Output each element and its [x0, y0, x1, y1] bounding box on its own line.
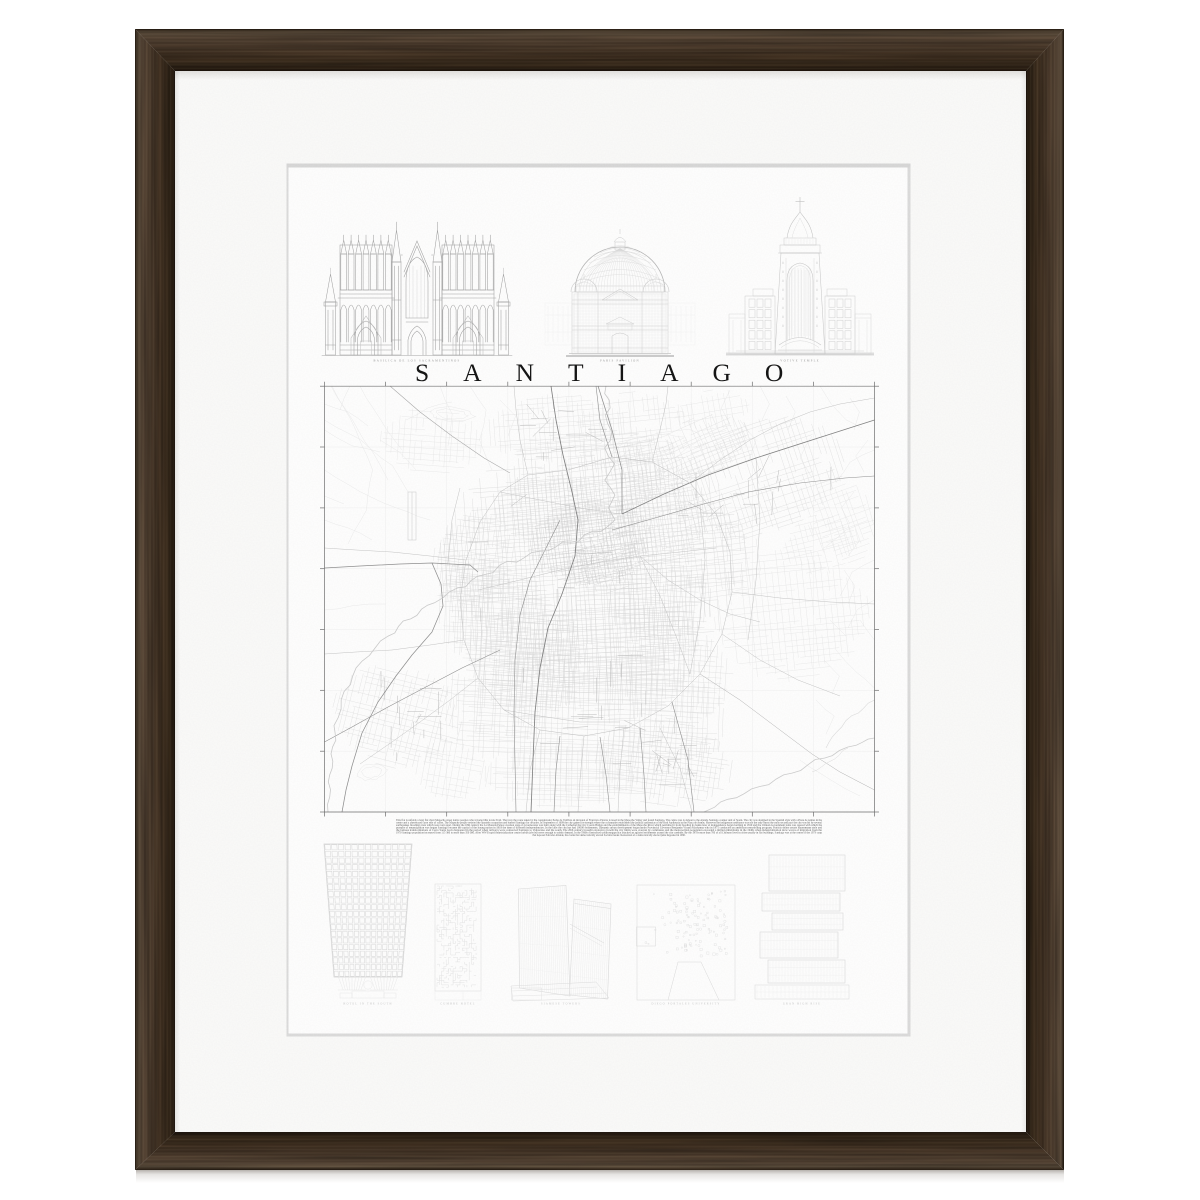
svg-text:CUMBRE HOTEL: CUMBRE HOTEL — [440, 1003, 475, 1006]
svg-text:HOTEL IN THE SOUTH: HOTEL IN THE SOUTH — [343, 1003, 392, 1006]
svg-text:that deposed Salvador Allende,: that deposed Salvador Allende, the event… — [532, 834, 685, 837]
svg-text:SIAMESE TOWERS: SIAMESE TOWERS — [541, 1003, 581, 1006]
svg-text:SANTIAGO: SANTIAGO — [415, 358, 817, 387]
svg-text:DIEGO PORTALES UNIVERSITY: DIEGO PORTALES UNIVERSITY — [651, 1003, 720, 1006]
svg-text:GRAN HIGH RISE: GRAN HIGH RISE — [783, 1003, 821, 1006]
